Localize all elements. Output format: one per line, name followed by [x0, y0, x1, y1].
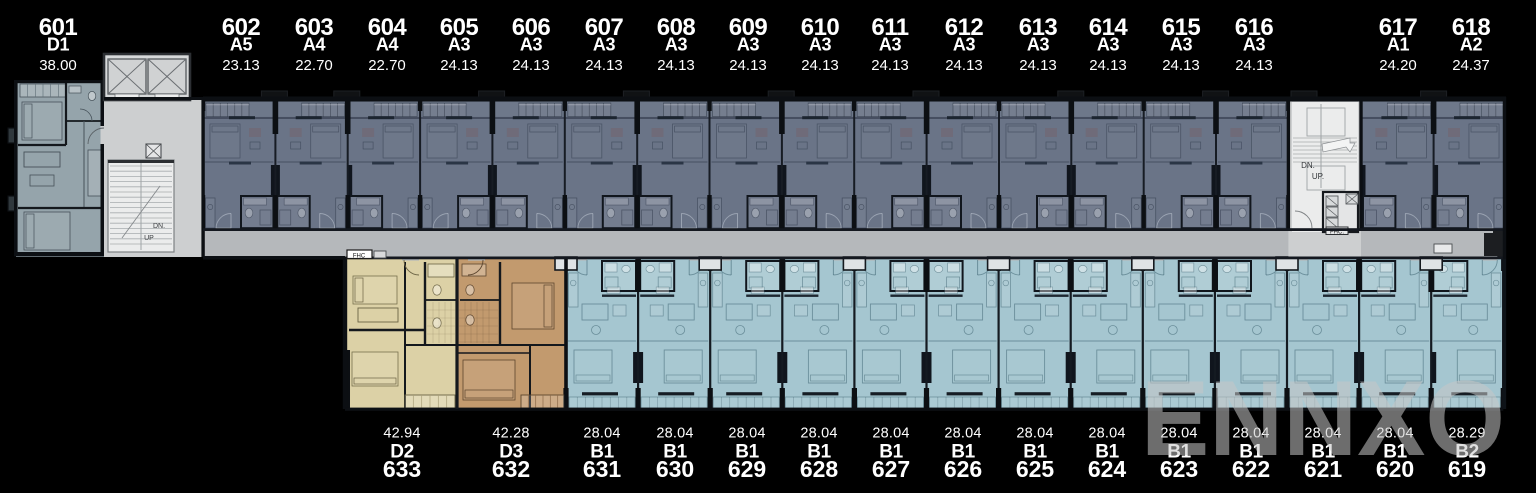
- svg-text:630: 630: [656, 456, 694, 482]
- svg-text:24.20: 24.20: [1379, 57, 1417, 74]
- svg-text:22.70: 22.70: [368, 57, 406, 74]
- svg-text:28.04: 28.04: [1088, 426, 1125, 442]
- svg-text:A3: A3: [1170, 35, 1193, 55]
- svg-text:A3: A3: [1243, 35, 1266, 55]
- svg-text:24.13: 24.13: [657, 57, 695, 74]
- svg-text:28.04: 28.04: [656, 426, 693, 442]
- svg-text:A4: A4: [376, 35, 399, 55]
- svg-text:A3: A3: [448, 35, 471, 55]
- svg-text:A3: A3: [953, 35, 976, 55]
- svg-text:ENNXO: ENNXO: [1141, 358, 1505, 478]
- svg-text:A3: A3: [665, 35, 688, 55]
- svg-text:24.13: 24.13: [1089, 57, 1127, 74]
- svg-text:A5: A5: [230, 35, 253, 55]
- svg-text:42.94: 42.94: [383, 426, 420, 442]
- svg-text:A4: A4: [303, 35, 326, 55]
- svg-text:28.04: 28.04: [944, 426, 981, 442]
- svg-text:UP: UP: [144, 235, 154, 242]
- svg-text:624: 624: [1088, 456, 1127, 482]
- svg-text:22.70: 22.70: [295, 57, 333, 74]
- svg-text:24.13: 24.13: [440, 57, 478, 74]
- svg-text:627: 627: [872, 456, 910, 482]
- svg-text:24.13: 24.13: [801, 57, 839, 74]
- svg-text:A3: A3: [809, 35, 832, 55]
- svg-text:A2: A2: [1460, 35, 1483, 55]
- svg-text:625: 625: [1016, 456, 1055, 482]
- svg-text:D1: D1: [47, 35, 70, 55]
- svg-text:633: 633: [383, 456, 421, 482]
- svg-text:24.13: 24.13: [1235, 57, 1273, 74]
- svg-text:23.13: 23.13: [222, 57, 260, 74]
- svg-text:FHC: FHC: [353, 253, 366, 259]
- svg-text:24.13: 24.13: [945, 57, 983, 74]
- svg-text:626: 626: [944, 456, 982, 482]
- svg-text:24.13: 24.13: [585, 57, 623, 74]
- svg-text:42.28: 42.28: [492, 426, 529, 442]
- svg-text:24.13: 24.13: [729, 57, 767, 74]
- svg-text:28.04: 28.04: [872, 426, 909, 442]
- svg-text:24.13: 24.13: [1019, 57, 1057, 74]
- svg-text:24.13: 24.13: [1162, 57, 1200, 74]
- svg-text:631: 631: [583, 456, 622, 482]
- svg-text:A3: A3: [1027, 35, 1050, 55]
- svg-text:628: 628: [800, 456, 839, 482]
- svg-text:38.00: 38.00: [39, 57, 77, 74]
- svg-text:28.04: 28.04: [800, 426, 837, 442]
- svg-text:A3: A3: [593, 35, 616, 55]
- svg-text:A3: A3: [737, 35, 760, 55]
- svg-text:24.13: 24.13: [871, 57, 909, 74]
- svg-text:A3: A3: [520, 35, 543, 55]
- svg-text:DN.: DN.: [1301, 161, 1315, 170]
- svg-text:A3: A3: [1097, 35, 1120, 55]
- svg-text:28.04: 28.04: [583, 426, 620, 442]
- svg-text:A3: A3: [879, 35, 902, 55]
- svg-text:24.13: 24.13: [512, 57, 550, 74]
- svg-text:UP.: UP.: [1312, 172, 1324, 181]
- svg-text:629: 629: [728, 456, 766, 482]
- svg-text:632: 632: [492, 456, 530, 482]
- svg-text:28.04: 28.04: [1016, 426, 1053, 442]
- svg-text:DN.: DN.: [153, 223, 165, 230]
- svg-text:24.37: 24.37: [1452, 57, 1490, 74]
- svg-text:28.04: 28.04: [728, 426, 765, 442]
- svg-text:A1: A1: [1387, 35, 1410, 55]
